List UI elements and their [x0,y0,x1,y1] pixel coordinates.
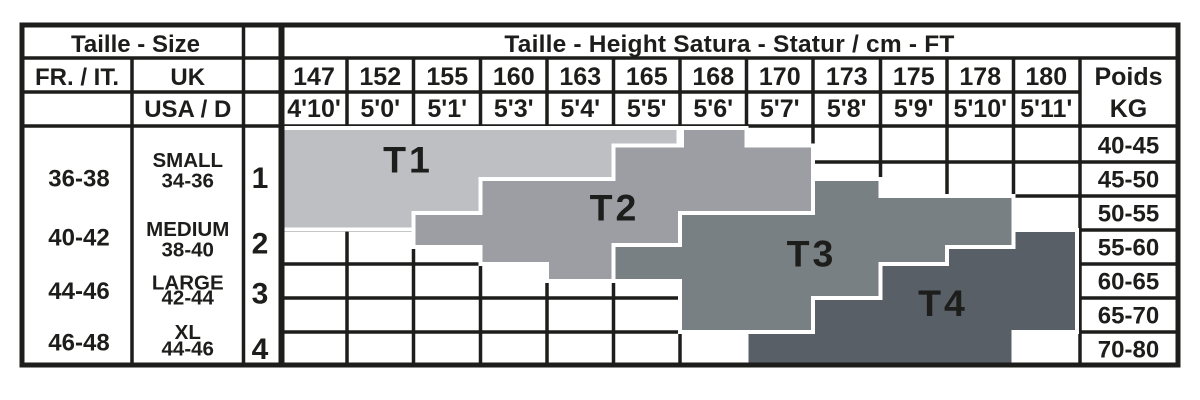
svg-text:5'7': 5'7' [760,95,800,123]
svg-text:165: 165 [626,63,668,91]
svg-text:Poids: Poids [1094,63,1162,91]
svg-text:147: 147 [293,63,335,91]
svg-text:175: 175 [893,63,935,91]
svg-text:46-48: 46-48 [48,330,109,357]
svg-text:170: 170 [759,63,801,91]
svg-text:163: 163 [559,63,601,91]
svg-text:5'8': 5'8' [827,95,867,123]
svg-text:5'3': 5'3' [494,95,534,123]
svg-text:5'5': 5'5' [627,95,667,123]
svg-text:KG: KG [1110,95,1148,123]
svg-text:42-44: 42-44 [162,287,215,310]
svg-text:160: 160 [493,63,535,91]
svg-text:65-70: 65-70 [1098,303,1159,330]
svg-text:50-55: 50-55 [1098,201,1159,228]
svg-text:40-45: 40-45 [1098,133,1159,160]
svg-text:155: 155 [426,63,468,91]
svg-text:T4: T4 [918,282,968,324]
svg-text:5'10': 5'10' [953,95,1007,123]
svg-text:T2: T2 [590,187,640,229]
svg-text:5'1': 5'1' [427,95,467,123]
svg-text:60-65: 60-65 [1098,269,1159,296]
svg-text:3: 3 [252,278,269,311]
svg-text:5'6': 5'6' [693,95,733,123]
svg-text:1: 1 [252,162,269,195]
svg-text:44-46: 44-46 [162,338,214,361]
svg-text:178: 178 [959,63,1001,91]
svg-text:173: 173 [826,63,868,91]
svg-text:2: 2 [252,228,269,261]
svg-text:UK: UK [170,64,205,91]
svg-text:T1: T1 [383,139,433,181]
svg-text:5'4': 5'4' [560,95,600,123]
svg-text:70-80: 70-80 [1098,337,1159,364]
svg-text:5'9': 5'9' [894,95,934,123]
svg-text:T3: T3 [787,233,837,275]
svg-text:34-36: 34-36 [162,170,214,193]
svg-text:180: 180 [1025,63,1067,91]
svg-text:4'10': 4'10' [287,95,341,123]
svg-text:40-42: 40-42 [48,225,109,252]
svg-text:FR. / IT.: FR. / IT. [35,64,119,91]
svg-text:5'11': 5'11' [1020,95,1072,123]
svg-text:5'0': 5'0' [360,95,400,123]
svg-text:36-38: 36-38 [48,166,109,193]
svg-text:Taille - Height Satura - Statu: Taille - Height Satura - Statur / cm - F… [504,31,954,58]
svg-text:44-46: 44-46 [48,278,109,305]
svg-text:55-60: 55-60 [1098,235,1159,262]
svg-text:45-50: 45-50 [1098,167,1159,194]
svg-text:USA / D: USA / D [144,96,231,123]
svg-text:Taille - Size: Taille - Size [71,31,200,58]
svg-text:4: 4 [252,333,269,366]
svg-text:38-40: 38-40 [162,239,214,262]
svg-text:168: 168 [692,63,734,91]
svg-text:152: 152 [359,63,401,91]
